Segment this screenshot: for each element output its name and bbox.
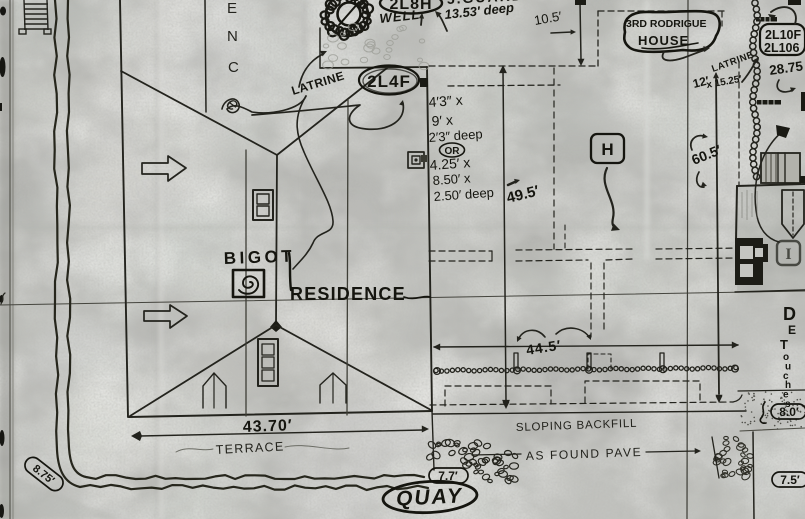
svg-text:BIGOT: BIGOT <box>223 247 295 268</box>
svg-text:E: E <box>227 0 237 17</box>
svg-text:43.70′: 43.70′ <box>243 417 293 436</box>
svg-text:3RD RODRIGUE: 3RD RODRIGUE <box>626 18 707 30</box>
svg-text:7.7′: 7.7′ <box>438 469 458 483</box>
svg-text:2L4F: 2L4F <box>367 72 411 91</box>
svg-text:QUAY: QUAY <box>396 484 464 510</box>
svg-text:2L10F: 2L10F <box>765 28 801 42</box>
svg-text:RESIDENCE: RESIDENCE <box>290 284 406 304</box>
svg-text:D: D <box>783 304 796 324</box>
svg-text:C: C <box>228 59 239 76</box>
svg-text:E: E <box>788 323 796 337</box>
svg-text:8.50′ x: 8.50′ x <box>432 170 471 188</box>
svg-text:7.5′: 7.5′ <box>780 473 800 487</box>
svg-text:2L106: 2L106 <box>764 41 799 55</box>
svg-text:8.0′: 8.0′ <box>779 405 799 419</box>
svg-text:H: H <box>601 140 613 159</box>
svg-text:T: T <box>780 337 788 352</box>
svg-text:N: N <box>227 28 238 45</box>
svg-text:9′ x: 9′ x <box>431 112 453 129</box>
svg-text:4′3″ x: 4′3″ x <box>428 92 463 110</box>
